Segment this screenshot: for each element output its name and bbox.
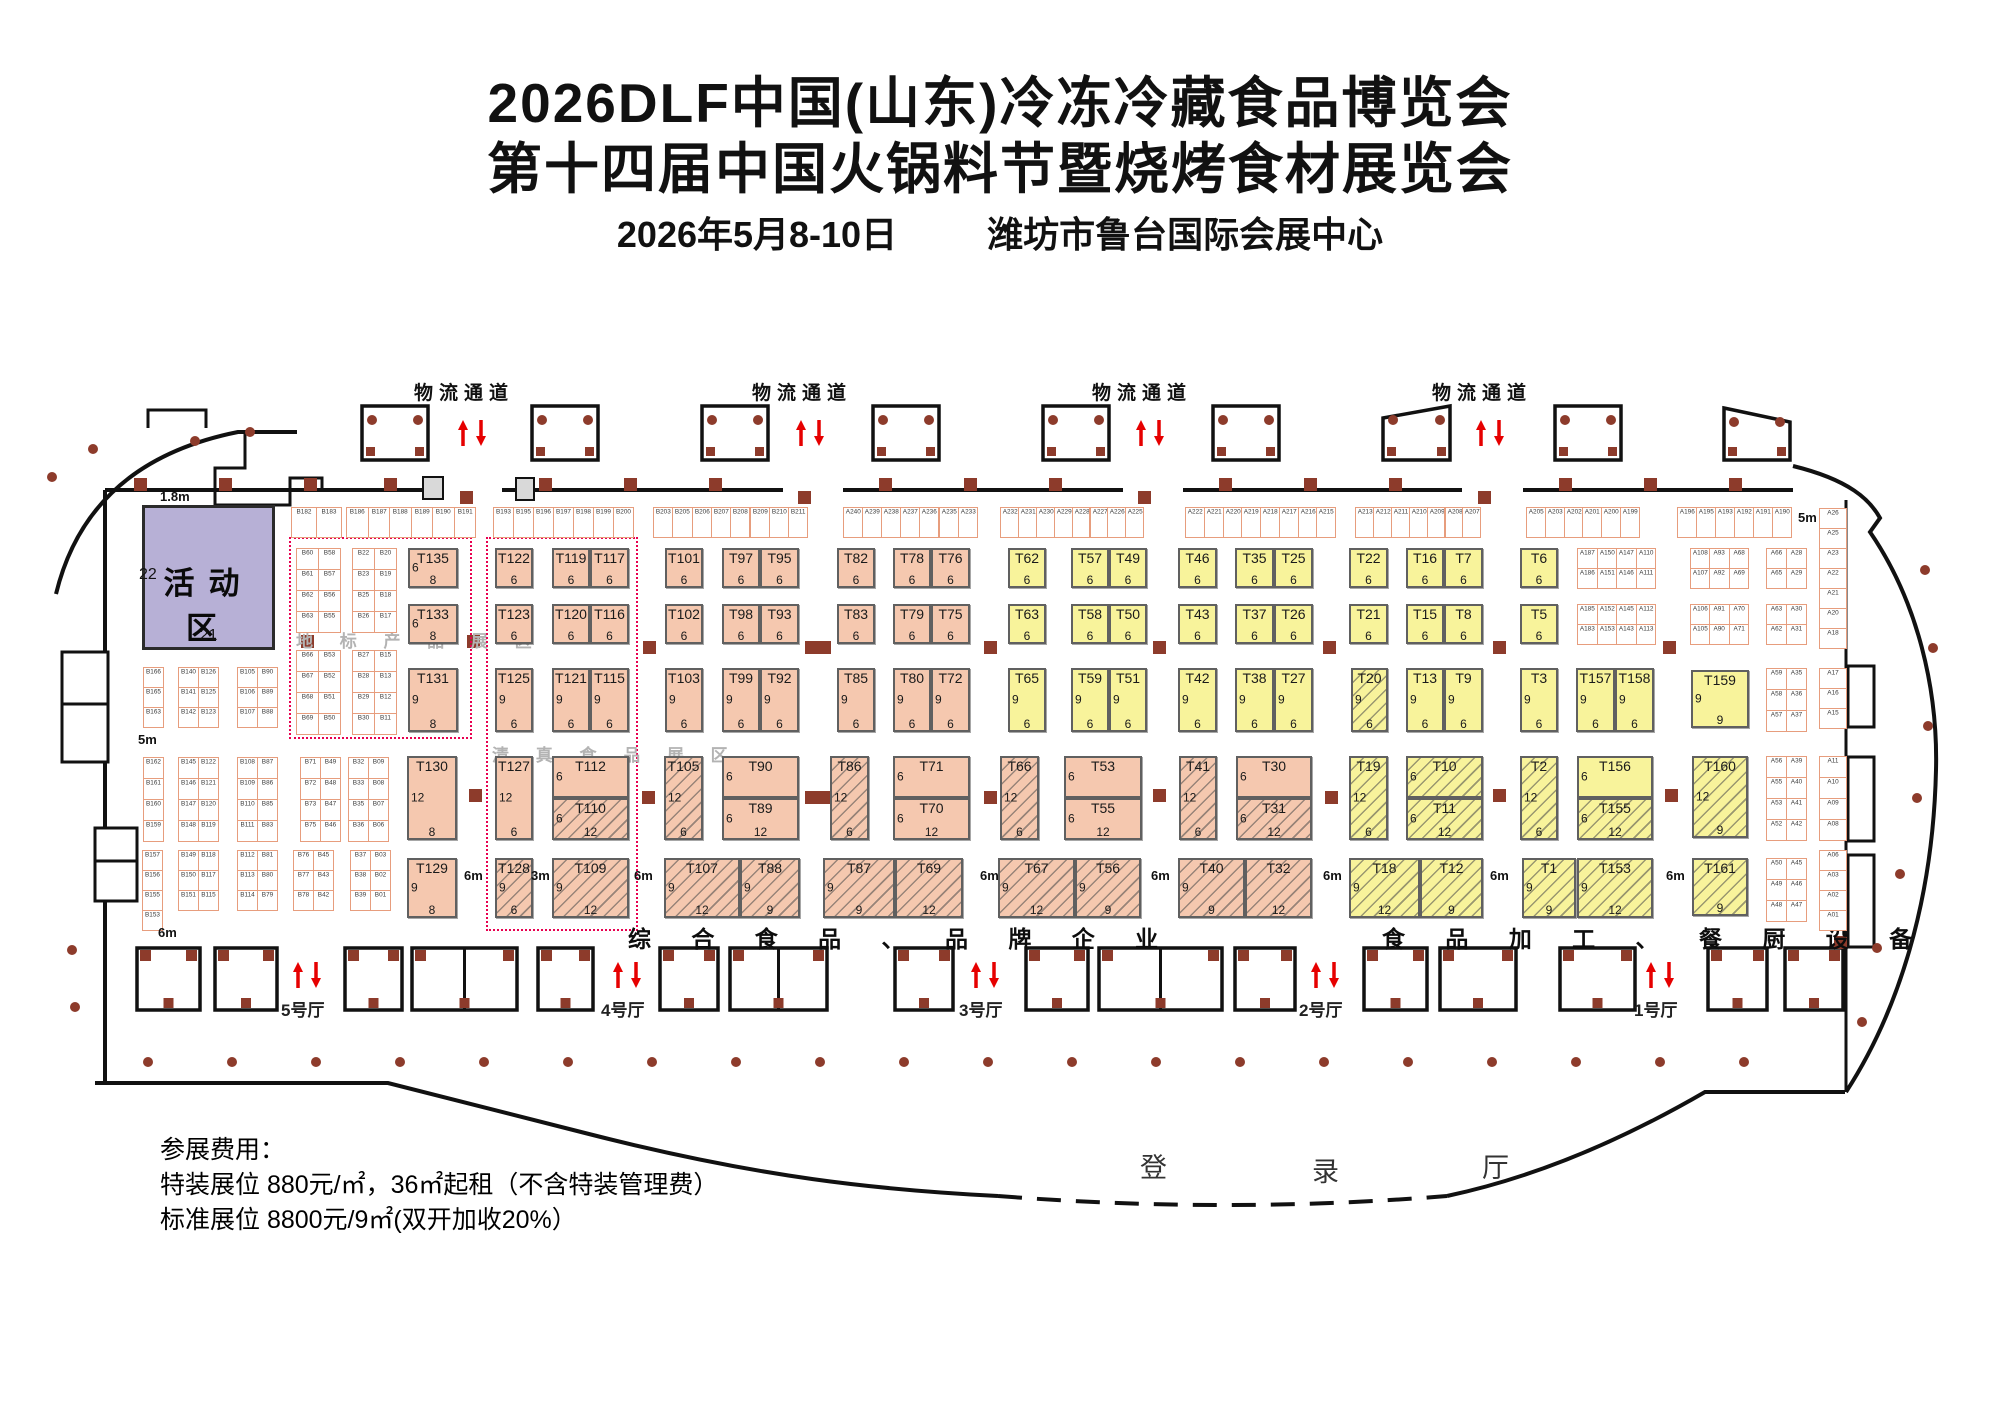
- booth-T13: T1396: [1406, 668, 1444, 732]
- dim-label-6m-3: 6m: [158, 925, 177, 940]
- booth-id: B80: [260, 871, 275, 878]
- booth-id: B47: [323, 800, 338, 807]
- booth-id: A150: [1599, 549, 1614, 556]
- booth-width: 6: [832, 825, 867, 839]
- booth-id: T35: [1237, 550, 1272, 566]
- area-label-1: 食 品 加 工 、 餐 厨 设 备: [1382, 920, 1929, 954]
- booth-id: B18: [377, 591, 394, 598]
- booth-width: 6: [667, 629, 701, 643]
- booth-id: T120: [554, 606, 588, 622]
- booth-id: A240: [846, 508, 860, 515]
- booth-id: A23: [1823, 549, 1844, 556]
- booth-depth: 9: [841, 692, 848, 706]
- booth-id: T110: [554, 800, 627, 816]
- booth-A233: A233: [958, 507, 978, 538]
- booth-id: B03: [373, 851, 388, 858]
- booth-width: 6: [933, 573, 968, 587]
- booth-A152: A152: [1597, 604, 1618, 625]
- booth-T51: T5196: [1109, 668, 1147, 732]
- booth-id: B63: [299, 612, 316, 619]
- booth-depth: 9: [1113, 692, 1120, 706]
- booth-id: B165: [146, 688, 161, 695]
- booth-width: 6: [1276, 573, 1311, 587]
- booth-id: B120: [201, 800, 216, 807]
- booth-depth: 6: [1581, 811, 1588, 825]
- booth-id: A200: [1604, 508, 1618, 515]
- booth-id: A17: [1823, 669, 1844, 676]
- booth-depth: 12: [1004, 790, 1017, 804]
- booth-B39: B39: [350, 890, 371, 911]
- activity-area: 活动区2221: [142, 505, 275, 650]
- booth-A65: A65: [1766, 568, 1787, 589]
- booth-T41: T41126: [1179, 756, 1217, 840]
- booth-id: A22: [1823, 569, 1844, 576]
- booth-B35: B35: [348, 799, 369, 821]
- booth-A31: A31: [1786, 624, 1807, 645]
- booth-B110: B110: [237, 799, 258, 821]
- booth-A187: A187: [1577, 548, 1598, 569]
- booth-A212: A212: [1373, 507, 1392, 538]
- booth-id: A152: [1599, 605, 1614, 612]
- booth-id: T107: [666, 860, 738, 876]
- booth-B38: B38: [350, 870, 371, 891]
- booth-id: A222: [1188, 508, 1202, 515]
- booth-id: T72: [933, 670, 968, 686]
- booth-B75: B75: [300, 820, 321, 842]
- booth-A192: A192: [1734, 507, 1754, 538]
- booth-width: 6: [1446, 573, 1481, 587]
- booth-B55: B55: [318, 611, 341, 633]
- booth-width: 6: [497, 573, 531, 587]
- booth-B115: B115: [198, 890, 219, 911]
- booth-A217: A217: [1279, 507, 1299, 538]
- booth-width: 6: [666, 825, 701, 839]
- booth-id: A71: [1731, 625, 1746, 632]
- booth-depth: 9: [556, 880, 563, 894]
- booth-id: T31: [1238, 800, 1310, 816]
- booth-A186: A186: [1577, 568, 1598, 589]
- booth-id: B141: [181, 688, 196, 695]
- booth-width: 6: [1073, 717, 1107, 731]
- booth-B53: B53: [318, 650, 341, 672]
- booth-A153: A153: [1597, 624, 1618, 645]
- booth-id: B09: [371, 758, 386, 765]
- booth-B188: B188: [389, 507, 412, 538]
- dock-label-1: 物流通道: [414, 378, 514, 405]
- booth-B206: B206: [692, 507, 712, 538]
- booth-id: B77: [296, 871, 311, 878]
- booth-T123: T1236: [495, 604, 533, 644]
- booth-id: T122: [497, 550, 531, 566]
- booth-A113: A113: [1636, 624, 1657, 645]
- booth-depth: 9: [1182, 692, 1189, 706]
- booth-id: T30: [1238, 758, 1310, 774]
- fee-info: 参展费用： 特装展位 880元/㎡，36㎡起租（不含特装管理费） 标准展位 88…: [160, 1133, 718, 1238]
- booth-id: T130: [409, 758, 455, 774]
- booth-id: B68: [299, 693, 316, 700]
- booth-A220: A220: [1223, 507, 1243, 538]
- booth-A237: A237: [900, 507, 920, 538]
- booth-A30: A30: [1786, 604, 1807, 625]
- booth-B22: B22: [352, 548, 375, 570]
- booth-id: B49: [323, 758, 338, 765]
- booth-T70: T70612: [893, 798, 970, 840]
- booth-A207: A207: [1462, 507, 1481, 538]
- booth-B121: B121: [198, 778, 219, 800]
- booth-T158: T15896: [1615, 668, 1654, 732]
- booth-id: A62: [1769, 625, 1784, 632]
- booth-A37: A37: [1786, 710, 1807, 732]
- booth-id: T87: [825, 860, 893, 876]
- booth-depth: 12: [499, 790, 512, 804]
- booth-width: 6: [839, 573, 873, 587]
- booth-width: 12: [1579, 903, 1651, 917]
- booth-id: A112: [1638, 605, 1653, 612]
- booth-B157: B157: [142, 850, 163, 871]
- booth-A01: A01: [1819, 910, 1847, 931]
- booth-id: B199: [596, 508, 611, 515]
- booth-B49: B49: [320, 757, 341, 779]
- booth-width: 9: [1693, 713, 1747, 727]
- booth-B209: B209: [750, 507, 770, 538]
- booth-id: B30: [355, 714, 372, 721]
- booth-id: B22: [355, 549, 372, 556]
- booth-id: B62: [299, 591, 316, 598]
- booth-A55: A55: [1766, 777, 1787, 799]
- booth-B191: B191: [454, 507, 477, 538]
- booth-depth: 12: [1524, 790, 1537, 804]
- booth-A146: A146: [1616, 568, 1637, 589]
- booth-id: B206: [694, 508, 709, 515]
- booth-B183: B183: [316, 507, 342, 538]
- booth-T82: T826: [837, 548, 875, 588]
- booth-depth: 12: [1183, 790, 1196, 804]
- booth-A111: A111: [1636, 568, 1657, 589]
- booth-id: A40: [1789, 778, 1804, 785]
- booth-id: T99: [724, 670, 758, 686]
- booth-id: T10: [1408, 758, 1481, 774]
- booth-id: B111: [240, 821, 255, 828]
- booth-A145: A145: [1616, 604, 1637, 625]
- booth-id: A08: [1823, 820, 1844, 827]
- booth-id: A232: [1003, 508, 1017, 515]
- booth-id: A68: [1731, 549, 1746, 556]
- hall-label-2号厅: 2号厅: [1299, 996, 1342, 1021]
- booth-width: 6: [497, 903, 531, 917]
- booth-B159: B159: [143, 820, 164, 842]
- booth-T53: T536: [1064, 756, 1142, 798]
- booth-id: B26: [355, 612, 372, 619]
- booth-id: A10: [1823, 778, 1844, 785]
- booth-B126: B126: [198, 667, 219, 688]
- booth-B149: B149: [178, 850, 199, 871]
- booth-T129: T12998: [407, 858, 457, 918]
- booth-id: A153: [1599, 625, 1614, 632]
- booth-id: B48: [323, 779, 338, 786]
- booth-depth: 9: [764, 692, 771, 706]
- booth-T57: T576: [1071, 548, 1109, 588]
- booth-B186: B186: [346, 507, 369, 538]
- booth-T119: T1196: [552, 548, 590, 588]
- booth-id: B83: [260, 821, 275, 828]
- booth-T153: T153912: [1577, 858, 1653, 918]
- booth-id: B33: [351, 779, 366, 786]
- booth-T102: T1026: [665, 604, 703, 644]
- booth-depth: 9: [1448, 692, 1455, 706]
- booth-A150: A150: [1597, 548, 1618, 569]
- booth-B48: B48: [320, 778, 341, 800]
- booth-width: 6: [1446, 629, 1481, 643]
- booth-A08: A08: [1819, 819, 1847, 841]
- booth-A35: A35: [1786, 668, 1807, 690]
- booth-id: A236: [922, 508, 936, 515]
- booth-A226: A226: [1107, 507, 1126, 538]
- booth-B47: B47: [320, 799, 341, 821]
- booth-T75: T756: [931, 604, 970, 644]
- booth-T155: T155612: [1577, 798, 1653, 840]
- booth-B198: B198: [573, 507, 594, 538]
- dim-label-6m-10: 6m: [1490, 868, 1509, 883]
- booth-depth: 9: [412, 692, 419, 706]
- booth-A196: A196: [1677, 507, 1697, 538]
- booth-width: 8: [410, 629, 456, 643]
- booth-A93: A93: [1709, 548, 1729, 569]
- booth-B57: B57: [318, 569, 341, 591]
- booth-id: B198: [576, 508, 591, 515]
- booth-width: 6: [1351, 573, 1386, 587]
- booth-id: B151: [181, 891, 196, 898]
- booth-A210: A210: [1409, 507, 1428, 538]
- booth-id: B85: [260, 800, 275, 807]
- booth-B63: B63: [296, 611, 319, 633]
- booth-depth: 12: [1696, 789, 1709, 803]
- booth-id: B01: [373, 891, 388, 898]
- booth-id: B08: [371, 779, 386, 786]
- booth-depth: 6: [897, 811, 904, 825]
- booth-B13: B13: [374, 671, 397, 693]
- dim-label-6m-8: 6m: [1151, 868, 1170, 883]
- booth-T127: T127126: [495, 756, 533, 840]
- booth-A02: A02: [1819, 890, 1847, 911]
- booth-id: T75: [933, 606, 968, 622]
- booth-id: B108: [240, 758, 255, 765]
- booth-A49: A49: [1766, 879, 1787, 901]
- booth-A235: A235: [939, 507, 959, 538]
- booth-id: A203: [1548, 508, 1562, 515]
- booth-A22: A22: [1819, 568, 1847, 589]
- booth-id: T7: [1446, 550, 1481, 566]
- booth-id: B61: [299, 570, 316, 577]
- booth-width: 9: [742, 903, 798, 917]
- booth-T31: T31612: [1236, 798, 1312, 840]
- booth-width: 6: [1111, 717, 1145, 731]
- booth-id: B146: [181, 779, 196, 786]
- booth-id: B46: [323, 821, 338, 828]
- booth-B163: B163: [143, 707, 164, 728]
- booth-A23: A23: [1819, 548, 1847, 569]
- booth-id: A110: [1638, 549, 1653, 556]
- booth-width: 6: [1446, 717, 1481, 731]
- booth-id: T98: [724, 606, 758, 622]
- booth-id: A219: [1244, 508, 1258, 515]
- booth-width: 6: [1073, 573, 1107, 587]
- booth-B06: B06: [368, 820, 389, 842]
- dim-label-6m-11: 6m: [1666, 868, 1685, 883]
- booth-id: A207: [1465, 508, 1479, 515]
- booth-T135: T13568: [408, 548, 458, 588]
- booth-width: 6: [1181, 825, 1215, 839]
- booth-id: T89: [724, 800, 797, 816]
- booth-B146: B146: [178, 778, 199, 800]
- booth-id: B28: [355, 672, 372, 679]
- booth-width: 6: [592, 629, 627, 643]
- booth-width: 6: [667, 573, 701, 587]
- booth-id: T67: [1000, 860, 1073, 876]
- booth-id: T85: [839, 670, 873, 686]
- dim-label-5m-2: 5m: [1798, 510, 1817, 525]
- booth-B156: B156: [142, 870, 163, 891]
- booth-id: A21: [1823, 589, 1844, 596]
- booth-B23: B23: [352, 569, 375, 591]
- booth-B111: B111: [237, 820, 258, 842]
- booth-B08: B08: [368, 778, 389, 800]
- booth-A41: A41: [1786, 798, 1807, 820]
- booth-id: T19: [1351, 758, 1386, 774]
- booth-id: T55: [1066, 800, 1140, 816]
- booth-depth: 9: [935, 692, 942, 706]
- registration-hall-char-2: 厅: [1482, 1146, 1509, 1185]
- booth-width: 8: [409, 903, 455, 917]
- booth-id: T121: [554, 670, 588, 686]
- booth-id: T160: [1694, 758, 1746, 774]
- booth-T109: T109912: [552, 858, 629, 918]
- booth-A63: A63: [1766, 604, 1787, 625]
- booth-id: A201: [1585, 508, 1599, 515]
- booth-T12: T129: [1420, 858, 1483, 918]
- booth-width: 12: [1000, 903, 1073, 917]
- booth-A240: A240: [843, 507, 863, 538]
- booth-id: A227: [1092, 508, 1106, 515]
- booth-id: B157: [145, 851, 160, 858]
- booth-id: B112: [240, 851, 255, 858]
- area-label-0: 综 合 食 品 、 品 牌 企 业: [628, 920, 1175, 954]
- booth-id: T15: [1408, 606, 1442, 622]
- booth-id: B122: [201, 758, 216, 765]
- booth-B78: B78: [293, 890, 314, 911]
- booth-width: 12: [1408, 825, 1481, 839]
- booth-width: 6: [1180, 573, 1215, 587]
- booth-width: 6: [554, 717, 588, 731]
- booth-width: 6: [1111, 629, 1145, 643]
- booth-id: A18: [1823, 629, 1844, 636]
- booth-id: A36: [1789, 690, 1804, 697]
- booth-id: A106: [1693, 605, 1708, 612]
- booth-id: T155: [1579, 800, 1651, 816]
- booth-id: T131: [410, 670, 456, 686]
- booth-id: T97: [724, 550, 758, 566]
- booth-id: B113: [240, 871, 255, 878]
- booth-id: A202: [1566, 508, 1580, 515]
- booth-A71: A71: [1729, 624, 1749, 645]
- booth-depth: 9: [726, 692, 733, 706]
- booth-T8: T86: [1444, 604, 1483, 644]
- booth-width: 6: [592, 717, 627, 731]
- booth-T79: T796: [893, 604, 931, 644]
- booth-id: B210: [772, 508, 787, 515]
- booth-id: B196: [536, 508, 551, 515]
- booth-width: 6: [1351, 825, 1386, 839]
- booth-B66: B66: [296, 650, 319, 672]
- booth-id: B87: [260, 758, 275, 765]
- booth-A39: A39: [1786, 756, 1807, 778]
- booth-id: B13: [377, 672, 394, 679]
- booth-T130: T130128: [407, 756, 457, 840]
- booth-T6: T66: [1520, 548, 1558, 588]
- booth-T32: T3212: [1245, 858, 1312, 918]
- booth-depth: 9: [1580, 692, 1587, 706]
- booth-T43: T436: [1178, 604, 1217, 644]
- booth-width: 6: [1276, 629, 1311, 643]
- booth-A06: A06: [1819, 850, 1847, 871]
- booth-id: B155: [145, 891, 160, 898]
- booth-B141: B141: [178, 687, 199, 708]
- booth-id: B187: [371, 508, 387, 515]
- booth-B87: B87: [257, 757, 278, 779]
- booth-id: B36: [351, 821, 366, 828]
- booth-id: A210: [1411, 508, 1425, 515]
- booth-id: T12: [1422, 860, 1481, 876]
- booth-id: B163: [146, 708, 161, 715]
- booth-B145: B145: [178, 757, 199, 779]
- booth-A09: A09: [1819, 798, 1847, 820]
- booth-B79: B79: [257, 890, 278, 911]
- booth-B113: B113: [237, 870, 258, 891]
- booth-width: 12: [666, 903, 738, 917]
- booth-T131: T13198: [408, 668, 458, 732]
- booth-T117: T1176: [590, 548, 629, 588]
- floorplan-page: 2026DLF中国(山东)冷冻冷藏食品博览会 第十四届中国火锅料节暨烧烤食材展览…: [0, 0, 2000, 1419]
- booth-T5: T56: [1520, 604, 1558, 644]
- booth-id: B109: [240, 779, 255, 786]
- booth-width: 6: [1351, 629, 1386, 643]
- booth-B36: B36: [348, 820, 369, 842]
- booth-id: A03: [1823, 871, 1844, 878]
- booth-B207: B207: [711, 507, 731, 538]
- booth-B69: B69: [296, 713, 319, 735]
- booth-T58: T586: [1071, 604, 1109, 644]
- booth-id: B42: [316, 891, 331, 898]
- booth-A58: A58: [1766, 689, 1787, 711]
- booth-id: A216: [1300, 508, 1314, 515]
- booth-width: 6: [1111, 573, 1145, 587]
- booth-B199: B199: [593, 507, 614, 538]
- booth-B88: B88: [257, 707, 278, 728]
- booth-id: A146: [1619, 569, 1634, 576]
- booth-A40: A40: [1786, 777, 1807, 799]
- booth-B81: B81: [257, 850, 278, 871]
- booth-width: 6: [1408, 717, 1442, 731]
- booth-id: A37: [1789, 711, 1804, 718]
- booth-id: T6: [1522, 550, 1556, 566]
- booth-id: T123: [497, 606, 531, 622]
- booth-width: 6: [839, 717, 873, 731]
- booth-id: A66: [1769, 549, 1784, 556]
- dim-label-6m-9: 6m: [1323, 868, 1342, 883]
- booth-id: T82: [839, 550, 873, 566]
- booth-id: B72: [303, 779, 318, 786]
- booth-id: A195: [1699, 508, 1713, 515]
- booth-depth: 9: [1002, 880, 1009, 894]
